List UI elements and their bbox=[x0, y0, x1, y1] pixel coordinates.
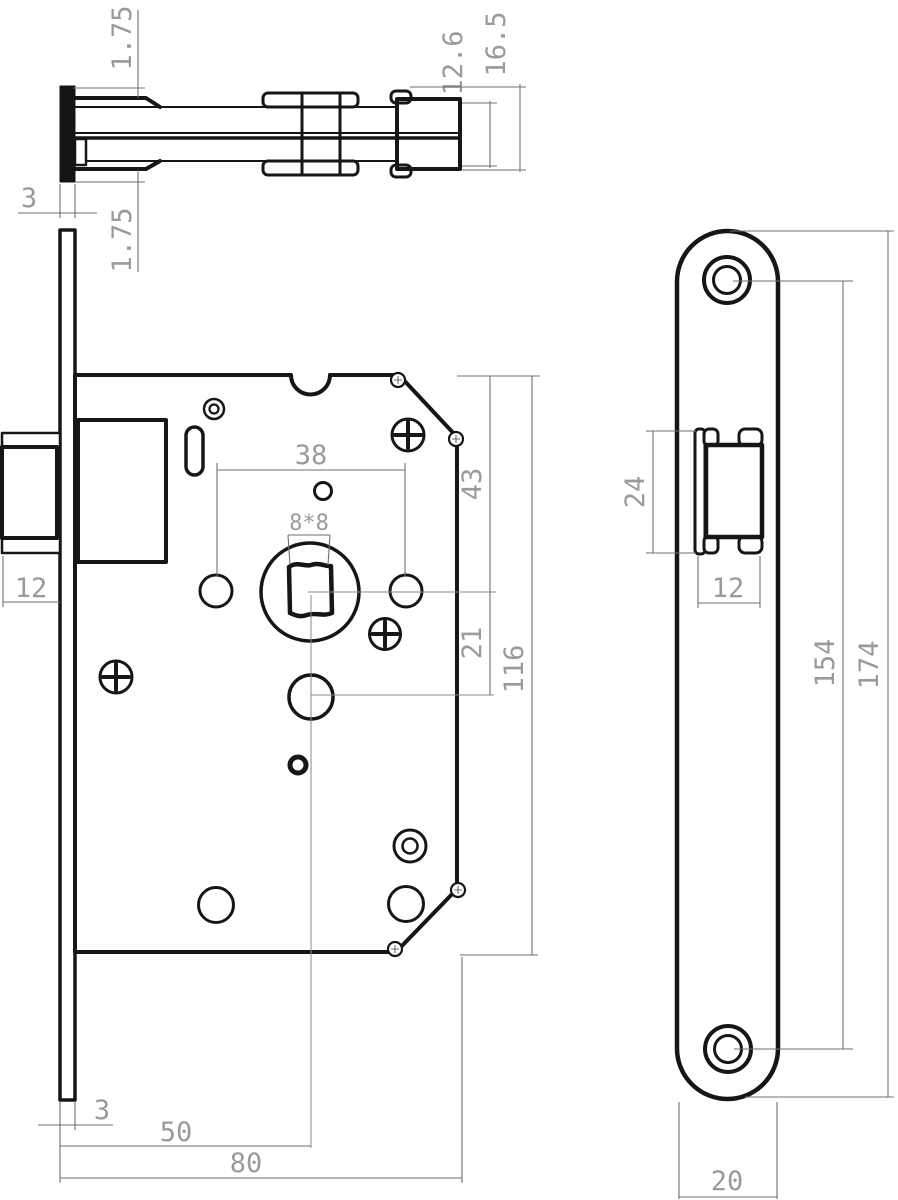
dim-case-height-label: 116 bbox=[499, 645, 530, 694]
latchbolt-plan-head bbox=[2, 447, 57, 538]
dim-handle-hole-spacing-label: 38 bbox=[295, 440, 328, 471]
latch-front-left-bar bbox=[695, 429, 705, 554]
drawing-svg: 1.75 12.6 16.5 3 1.75 bbox=[0, 0, 898, 1200]
dim-screw-spacing-label: 154 bbox=[810, 639, 841, 688]
dim-plate-length-label: 174 bbox=[854, 641, 885, 690]
dim-latchbolt-width: 12 bbox=[3, 556, 60, 607]
dim-plate-offset-top-label: 1.75 bbox=[107, 5, 138, 70]
spring-block-top-tab bbox=[263, 93, 358, 107]
dim-latch-front-height-label: 24 bbox=[620, 476, 651, 509]
dim-spindle-to-hole: 21 bbox=[457, 592, 490, 695]
dim-case-depth: 80 bbox=[60, 957, 462, 1183]
faceplate-section bbox=[60, 86, 75, 182]
lock-technical-drawing: 1.75 12.6 16.5 3 1.75 bbox=[0, 0, 898, 1200]
spring-block-bottom-tab bbox=[263, 161, 358, 175]
phillips-screw-left bbox=[100, 661, 132, 693]
dim-bolt-head-height-label: 12.6 bbox=[438, 30, 469, 95]
bolt-bottom-flange bbox=[75, 161, 160, 169]
latch-front-body bbox=[706, 445, 762, 537]
faceplate-front-view bbox=[677, 231, 778, 1099]
dim-plate-offset-top: 1.75 bbox=[73, 5, 145, 98]
dim-case-depth-label: 80 bbox=[230, 1148, 263, 1179]
dim-faceplate-thickness-top-label: 3 bbox=[21, 183, 37, 214]
dim-latchbolt-width-label: 12 bbox=[15, 573, 48, 604]
dim-plate-width-label: 20 bbox=[711, 1166, 744, 1197]
faceplate-strip bbox=[60, 230, 75, 1100]
lock-case-view bbox=[2, 230, 496, 1148]
dim-plate-width: 20 bbox=[679, 1102, 777, 1199]
dim-top-to-spindle-label: 43 bbox=[457, 468, 488, 501]
dim-backset-label: 50 bbox=[160, 1117, 193, 1148]
dim-plate-offset-bottom-label: 1.75 bbox=[107, 207, 138, 272]
dim-spindle-square-label: 8*8 bbox=[289, 511, 329, 536]
dim-faceplate-thickness-bottom: 3 bbox=[38, 1095, 113, 1183]
dim-bolt-total-height-label: 16.5 bbox=[481, 11, 512, 76]
follower-box bbox=[78, 420, 166, 562]
bolt-top-flange bbox=[75, 98, 160, 107]
dim-faceplate-thickness-bottom-label: 3 bbox=[94, 1095, 110, 1126]
faceplate-outline bbox=[677, 231, 778, 1099]
phillips-screw-middle bbox=[370, 619, 401, 650]
dim-case-height: 116 bbox=[460, 376, 538, 955]
dim-plate-offset-bottom: 1.75 bbox=[75, 170, 145, 273]
phillips-screw-top-right bbox=[392, 419, 424, 451]
dim-top-to-spindle: 43 bbox=[457, 376, 540, 592]
bolt-tail-stub bbox=[75, 139, 86, 165]
dim-faceplate-thickness-top: 3 bbox=[18, 183, 97, 218]
latch-side-view bbox=[60, 86, 460, 182]
dim-spindle-to-hole-label: 21 bbox=[457, 627, 488, 660]
dim-latch-front-width-label: 12 bbox=[712, 573, 745, 604]
